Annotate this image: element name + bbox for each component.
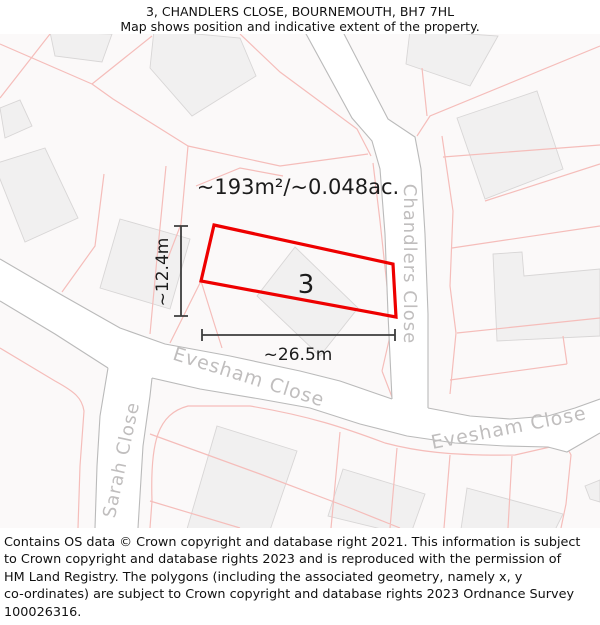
building: [406, 34, 498, 86]
width-dimension-label: ~26.5m: [264, 345, 333, 365]
building: [100, 219, 190, 309]
building: [585, 480, 600, 502]
page-title: 3, CHANDLERS CLOSE, BOURNEMOUTH, BH7 7HL: [0, 4, 600, 19]
map-container: Chandlers Close Evesham Close Evesham Cl…: [0, 34, 600, 528]
footer-line: HM Land Registry. The polygons (includin…: [4, 569, 596, 586]
street-label-chandlers-close: Chandlers Close: [399, 184, 420, 344]
footer-line: Contains OS data © Crown copyright and d…: [4, 534, 596, 551]
plot-number-label: 3: [298, 270, 315, 300]
building: [0, 148, 78, 242]
footer-line: to Crown copyright and database rights 2…: [4, 551, 596, 568]
building: [185, 426, 297, 528]
dimension-annotations: ~12.4m ~26.5m ~193m²/~0.048ac. 3: [153, 175, 399, 365]
building: [460, 488, 563, 528]
property-map: Chandlers Close Evesham Close Evesham Cl…: [0, 34, 600, 528]
height-dimension-label: ~12.4m: [153, 238, 173, 307]
building: [50, 34, 112, 62]
building: [457, 91, 563, 199]
copyright-footer: Contains OS data © Crown copyright and d…: [0, 528, 600, 621]
building: [150, 34, 256, 116]
footer-line: 100026316.: [4, 604, 596, 621]
building: [0, 100, 32, 138]
page-subtitle: Map shows position and indicative extent…: [0, 19, 600, 34]
area-label: ~193m²/~0.048ac.: [197, 175, 399, 199]
report-header: 3, CHANDLERS CLOSE, BOURNEMOUTH, BH7 7HL…: [0, 0, 600, 34]
footer-line: co-ordinates) are subject to Crown copyr…: [4, 586, 596, 603]
